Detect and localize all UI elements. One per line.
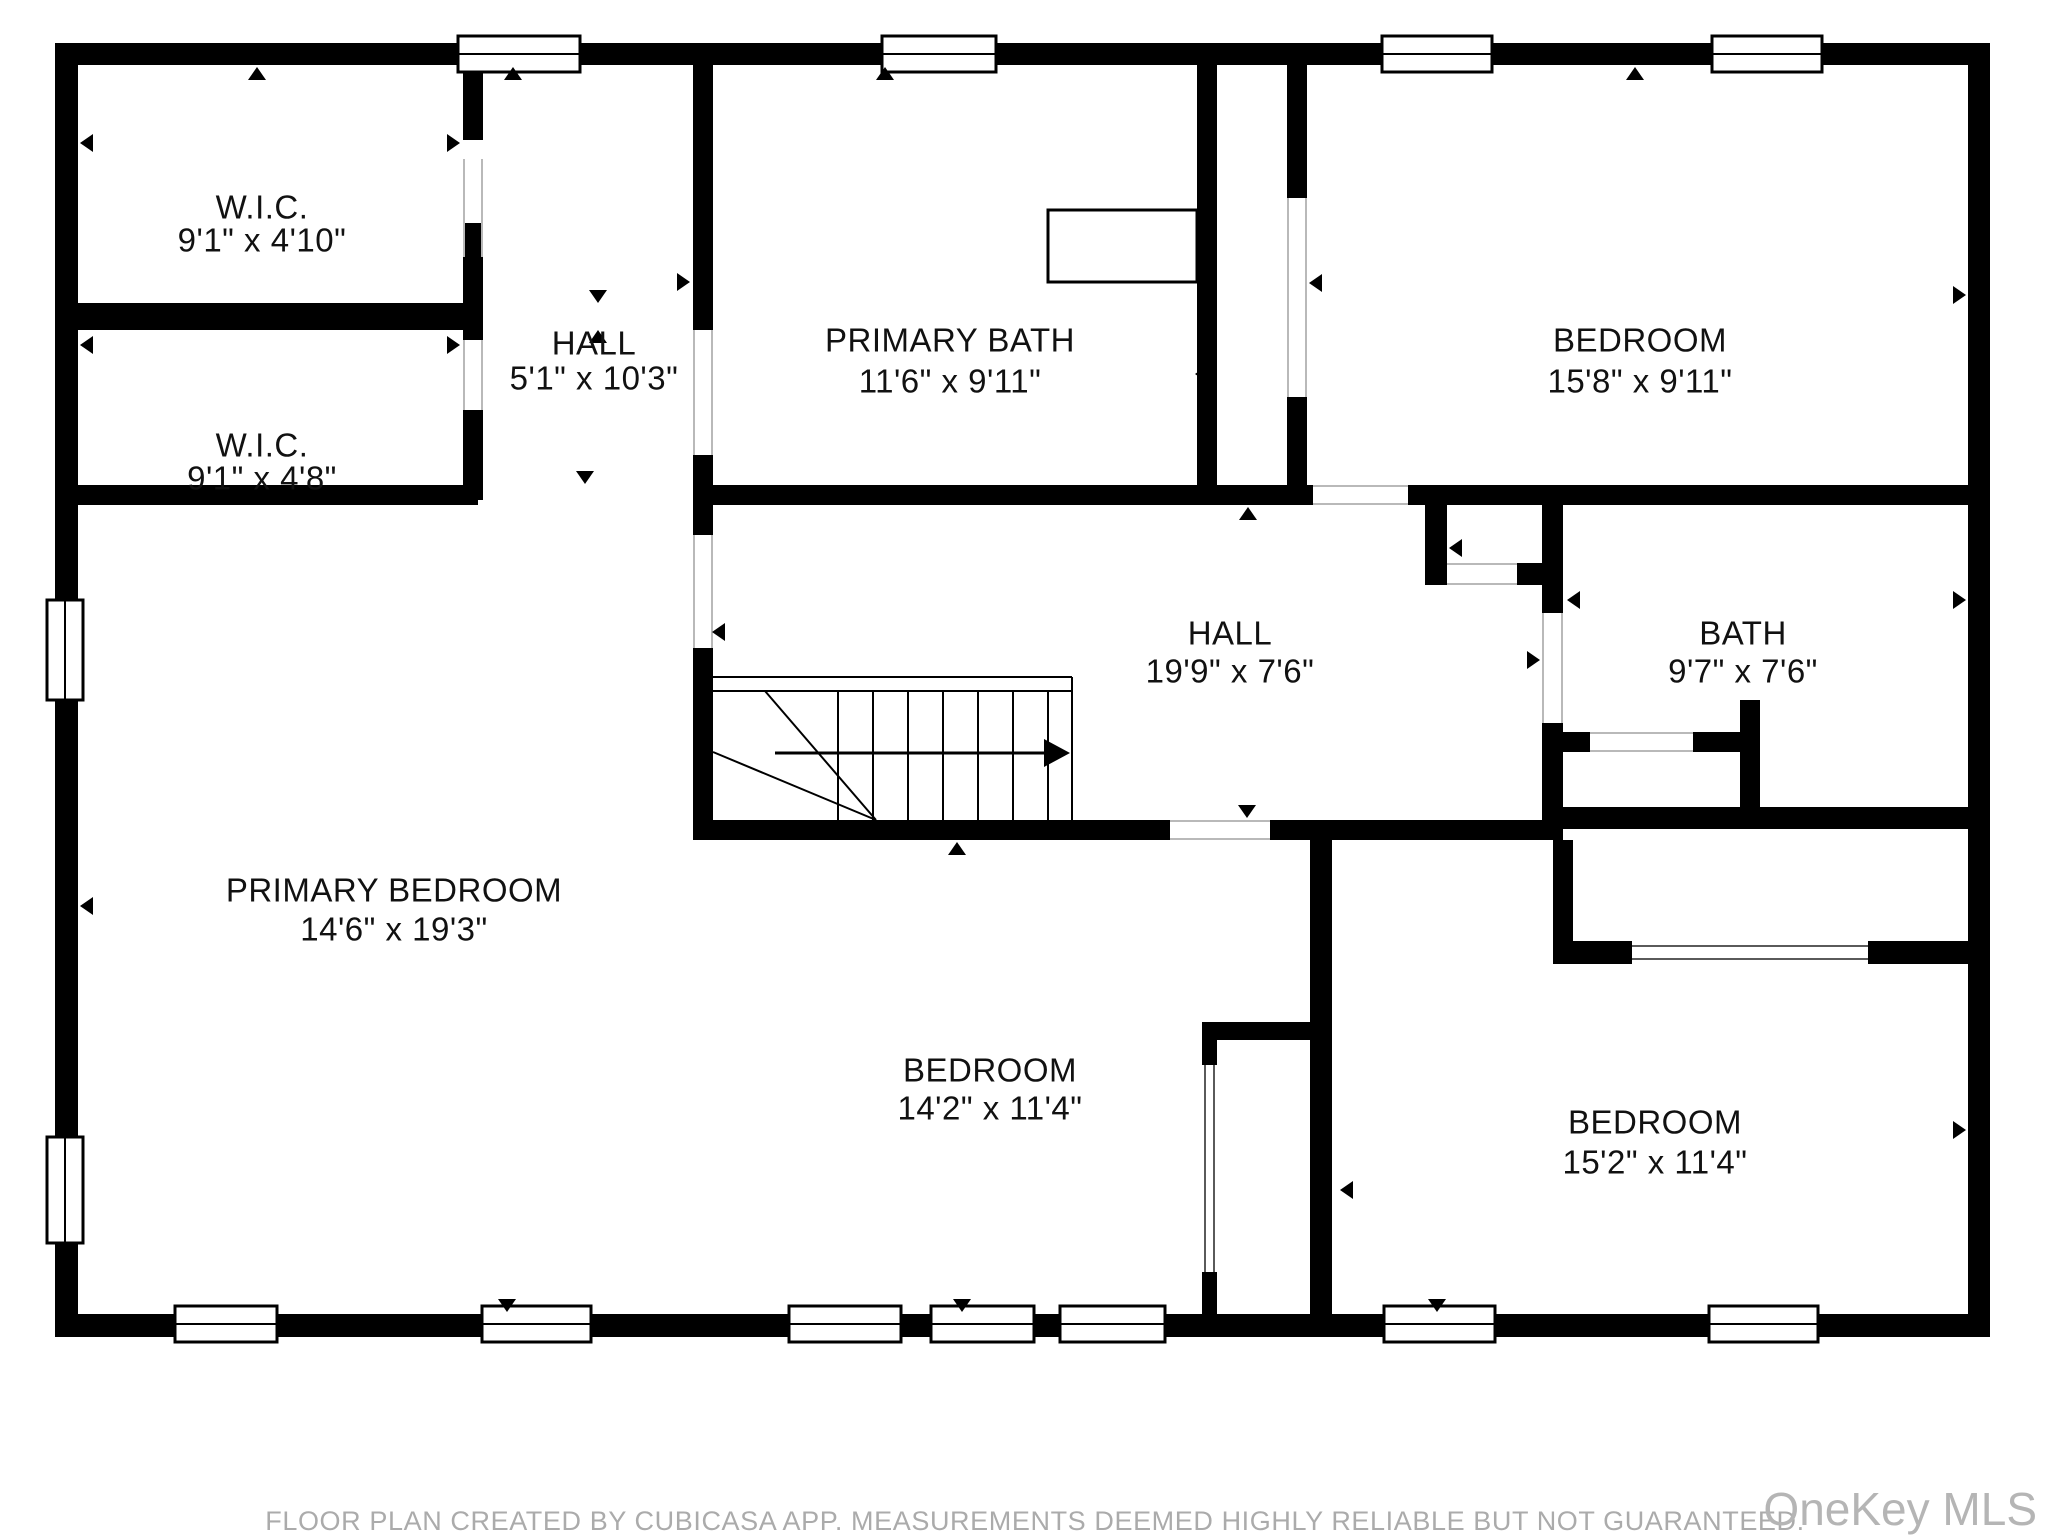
room-dims: 9'7" x 7'6" [1668, 653, 1818, 690]
room-label-bedroom-middle: BEDROOM 14'2" x 11'4" [897, 1052, 1082, 1127]
room-dims: 9'1" x 4'10" [178, 222, 347, 259]
room-dims: 15'2" x 11'4" [1562, 1144, 1747, 1181]
room-name: W.I.C. [216, 427, 309, 464]
room-name: BATH [1699, 615, 1787, 652]
staircase [713, 677, 1072, 820]
room-label-wic-1: W.I.C. 9'1" x 4'10" [178, 189, 347, 259]
footer-disclaimer: FLOOR PLAN CREATED BY CUBICASA APP. MEAS… [265, 1506, 1804, 1536]
room-dims: 15'8" x 9'11" [1547, 363, 1732, 400]
room-label-bedroom-bottom-right: BEDROOM 15'2" x 11'4" [1562, 1104, 1747, 1181]
room-name: HALL [552, 325, 637, 362]
room-label-hall-upper: HALL 5'1" x 10'3" [510, 325, 679, 397]
room-labels: W.I.C. 9'1" x 4'10" W.I.C. 9'1" x 4'8" H… [178, 189, 1818, 1181]
room-label-hall-lower: HALL 19'9" x 7'6" [1146, 615, 1315, 690]
floor-plan-page: W.I.C. 9'1" x 4'10" W.I.C. 9'1" x 4'8" H… [0, 0, 2048, 1536]
floor-plan-drawing: W.I.C. 9'1" x 4'10" W.I.C. 9'1" x 4'8" H… [0, 0, 2048, 1536]
room-label-wic-2: W.I.C. 9'1" x 4'8" [187, 427, 337, 497]
room-dims: 9'1" x 4'8" [187, 460, 337, 497]
room-name: PRIMARY BEDROOM [226, 872, 562, 909]
room-dims: 19'9" x 7'6" [1146, 653, 1315, 690]
room-name: W.I.C. [216, 189, 309, 226]
watermark: OneKey MLS [1763, 1483, 2037, 1535]
room-name: BEDROOM [1553, 322, 1727, 359]
room-label-bath: BATH 9'7" x 7'6" [1668, 615, 1818, 690]
room-name: PRIMARY BATH [825, 322, 1075, 359]
room-label-primary-bedroom: PRIMARY BEDROOM 14'6" x 19'3" [226, 872, 562, 948]
room-name: BEDROOM [1568, 1104, 1742, 1141]
room-dims: 14'6" x 19'3" [300, 911, 487, 948]
room-label-primary-bath: PRIMARY BATH 11'6" x 9'11" [825, 322, 1075, 400]
room-name: HALL [1188, 615, 1273, 652]
room-dims: 11'6" x 9'11" [859, 363, 1042, 400]
vanity-counter [1048, 210, 1197, 282]
stairs-up-arrow-icon [1044, 739, 1070, 767]
room-label-bedroom-top-right: BEDROOM 15'8" x 9'11" [1547, 322, 1732, 400]
room-name: BEDROOM [903, 1052, 1077, 1089]
room-dims: 14'2" x 11'4" [897, 1090, 1082, 1127]
room-dims: 5'1" x 10'3" [510, 360, 679, 397]
